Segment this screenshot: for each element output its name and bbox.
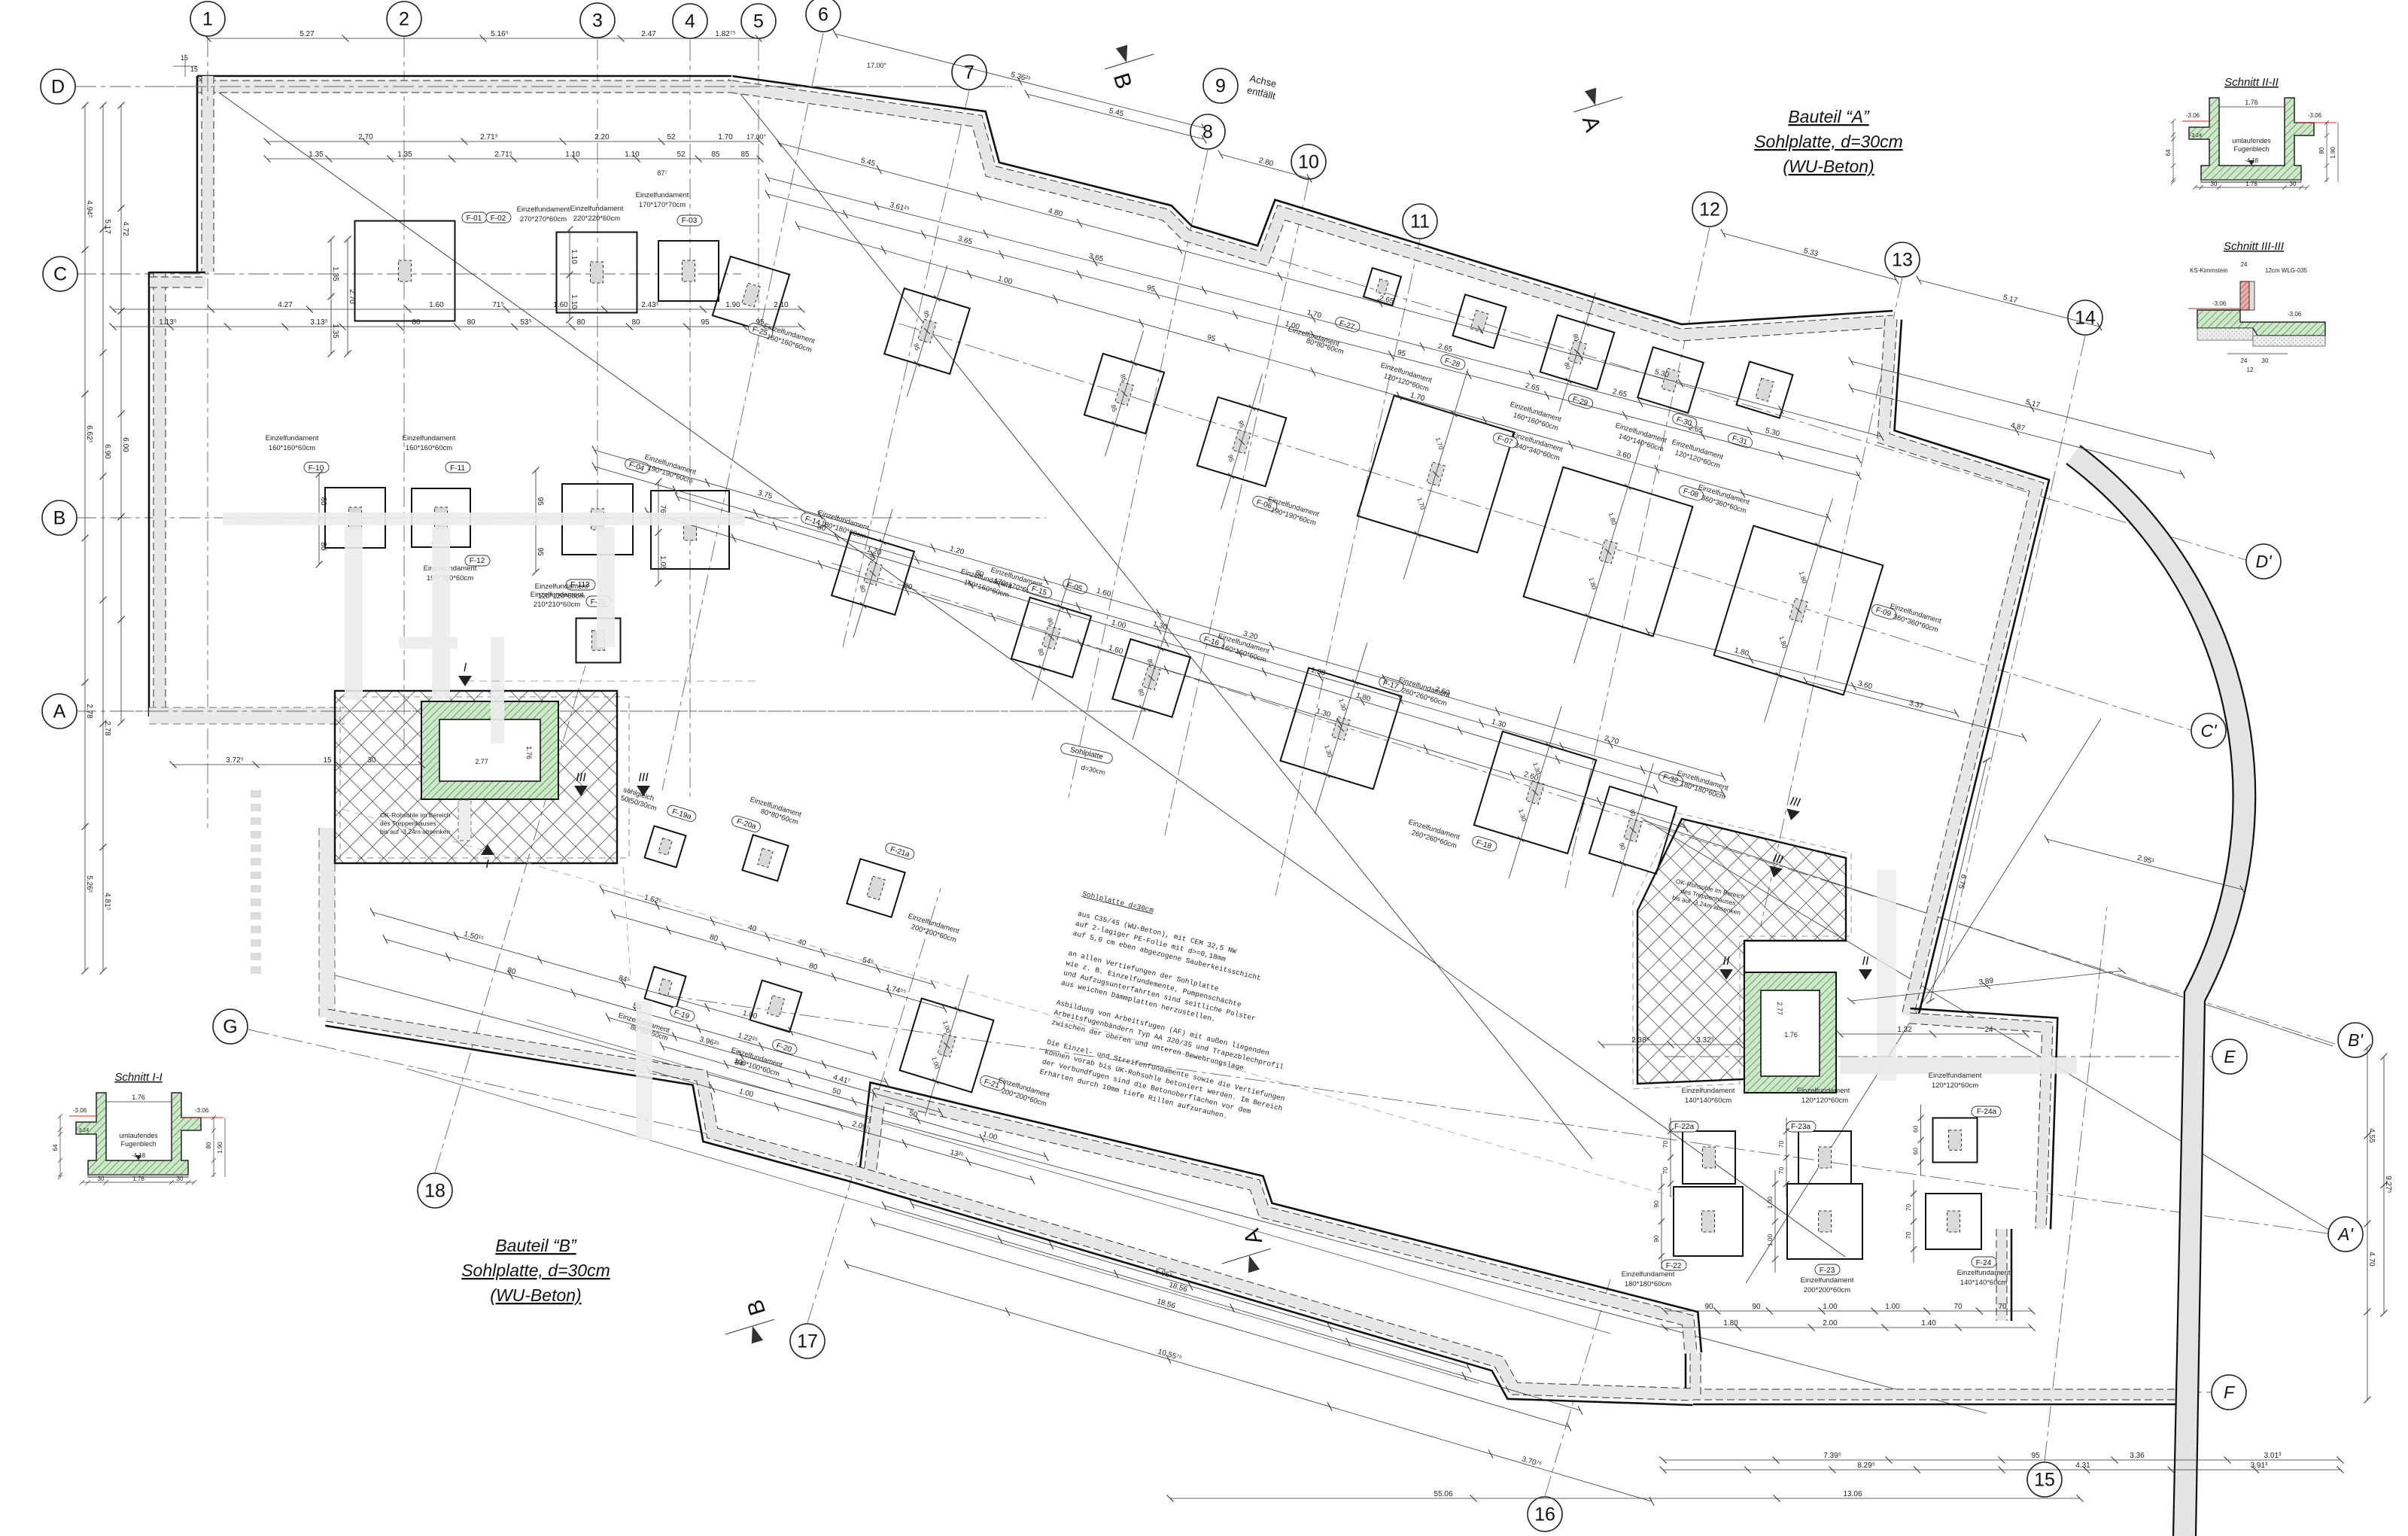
svg-text:Einzelfundament: Einzelfundament bbox=[1801, 1276, 1854, 1285]
svg-text:2.00: 2.00 bbox=[1823, 1319, 1838, 1328]
svg-text:160*160*60cm: 160*160*60cm bbox=[269, 444, 315, 452]
svg-text:F-23a: F-23a bbox=[1791, 1123, 1811, 1131]
svg-text:5.16⁵: 5.16⁵ bbox=[491, 30, 509, 38]
svg-text:III: III bbox=[576, 771, 586, 784]
svg-text:1.35: 1.35 bbox=[331, 324, 339, 339]
svg-text:2.38⁵: 2.38⁵ bbox=[1631, 1036, 1649, 1045]
svg-text:90: 90 bbox=[1704, 1303, 1713, 1311]
svg-text:-3.06: -3.06 bbox=[73, 1107, 87, 1114]
svg-text:1.32: 1.32 bbox=[1897, 1026, 1912, 1034]
svg-text:24: 24 bbox=[1984, 1026, 1993, 1034]
svg-text:12: 12 bbox=[1699, 199, 1720, 221]
svg-text:E: E bbox=[2224, 1047, 2236, 1066]
svg-text:2.70: 2.70 bbox=[358, 133, 373, 141]
svg-text:80: 80 bbox=[319, 497, 327, 506]
svg-text:24: 24 bbox=[2241, 261, 2248, 268]
svg-text:30: 30 bbox=[2211, 181, 2218, 187]
svg-text:1.76: 1.76 bbox=[2245, 99, 2258, 106]
svg-text:-3.06: -3.06 bbox=[2212, 300, 2227, 307]
svg-text:70: 70 bbox=[1662, 1141, 1669, 1148]
svg-text:1.10: 1.10 bbox=[570, 249, 578, 264]
svg-text:4.31: 4.31 bbox=[2075, 1461, 2090, 1470]
svg-text:95: 95 bbox=[2031, 1452, 2040, 1460]
svg-text:A': A' bbox=[2337, 1224, 2354, 1244]
svg-text:1.35: 1.35 bbox=[331, 266, 339, 281]
svg-text:200*200*60cm: 200*200*60cm bbox=[1804, 1286, 1850, 1294]
svg-text:F-01: F-01 bbox=[467, 214, 482, 223]
svg-text:Schnitt III-III: Schnitt III-III bbox=[2224, 240, 2284, 253]
svg-text:30: 30 bbox=[177, 1176, 184, 1182]
svg-text:95: 95 bbox=[536, 497, 544, 506]
svg-text:3.36: 3.36 bbox=[2130, 1452, 2145, 1460]
svg-text:Sohlplatte, d=30cm: Sohlplatte, d=30cm bbox=[461, 1261, 610, 1280]
svg-text:-3.06: -3.06 bbox=[2308, 112, 2322, 119]
svg-text:Einzelfundament: Einzelfundament bbox=[1957, 1269, 2011, 1277]
svg-text:5: 5 bbox=[753, 11, 764, 32]
svg-text:80: 80 bbox=[205, 1142, 212, 1148]
svg-text:F-24: F-24 bbox=[1976, 1259, 1992, 1267]
svg-text:13: 13 bbox=[1892, 250, 1913, 271]
svg-text:120*120*60cm: 120*120*60cm bbox=[538, 592, 585, 601]
svg-text:3.13⁵: 3.13⁵ bbox=[310, 318, 328, 327]
svg-text:70: 70 bbox=[1662, 1167, 1669, 1175]
svg-text:Einzelfundament: Einzelfundament bbox=[403, 434, 456, 443]
svg-text:170*170*70cm: 170*170*70cm bbox=[639, 201, 686, 209]
svg-text:1.80: 1.80 bbox=[1723, 1319, 1738, 1328]
svg-text:140*140*60cm: 140*140*60cm bbox=[1960, 1279, 2007, 1287]
svg-text:71⁵: 71⁵ bbox=[492, 301, 503, 309]
svg-text:80: 80 bbox=[2318, 147, 2325, 154]
svg-text:1: 1 bbox=[202, 9, 213, 30]
svg-text:1.82⁷⁵: 1.82⁷⁵ bbox=[715, 30, 735, 38]
svg-text:1.90: 1.90 bbox=[725, 301, 740, 309]
svg-text:7: 7 bbox=[964, 62, 974, 84]
svg-text:II: II bbox=[1862, 955, 1869, 968]
svg-text:15: 15 bbox=[190, 65, 198, 73]
svg-text:1.90: 1.90 bbox=[2330, 147, 2337, 159]
svg-text:220*220*60cm: 220*220*60cm bbox=[573, 214, 620, 223]
svg-text:15: 15 bbox=[181, 54, 188, 62]
svg-text:-3.06: -3.06 bbox=[195, 1107, 209, 1114]
svg-text:90: 90 bbox=[1752, 1303, 1761, 1311]
svg-text:B': B' bbox=[2348, 1030, 2364, 1050]
svg-text:95: 95 bbox=[536, 547, 544, 556]
svg-text:Schnitt I-I: Schnitt I-I bbox=[114, 1071, 162, 1084]
svg-text:3.89: 3.89 bbox=[1978, 977, 1994, 987]
svg-text:6.00: 6.00 bbox=[121, 437, 129, 452]
svg-text:2.71⁵: 2.71⁵ bbox=[494, 151, 512, 159]
svg-text:II: II bbox=[1723, 955, 1730, 968]
svg-text:F-24a: F-24a bbox=[1977, 1108, 1997, 1116]
svg-text:4: 4 bbox=[685, 11, 695, 32]
svg-text:1.10: 1.10 bbox=[565, 151, 580, 159]
svg-text:1.35: 1.35 bbox=[309, 151, 324, 159]
svg-text:Einzelfundament: Einzelfundament bbox=[636, 191, 689, 199]
svg-text:1.60: 1.60 bbox=[429, 301, 444, 309]
svg-text:F-23: F-23 bbox=[1820, 1267, 1835, 1275]
svg-text:1.13⁵: 1.13⁵ bbox=[159, 318, 177, 327]
svg-text:umlaufendes: umlaufendes bbox=[2232, 137, 2271, 144]
svg-text:D: D bbox=[51, 77, 65, 98]
svg-text:14: 14 bbox=[2075, 308, 2096, 329]
svg-text:80: 80 bbox=[412, 318, 421, 327]
svg-text:2.47: 2.47 bbox=[641, 30, 656, 38]
svg-text:1.76: 1.76 bbox=[132, 1093, 145, 1101]
svg-text:70: 70 bbox=[1777, 1141, 1785, 1148]
svg-text:60: 60 bbox=[1912, 1148, 1920, 1155]
svg-text:7.39⁵: 7.39⁵ bbox=[1823, 1452, 1841, 1460]
svg-text:KS-Kimmstein: KS-Kimmstein bbox=[2190, 267, 2228, 274]
svg-text:9.27⁵: 9.27⁵ bbox=[2384, 1176, 2392, 1194]
svg-text:10: 10 bbox=[1298, 152, 1319, 173]
svg-text:3.01³: 3.01³ bbox=[2264, 1452, 2282, 1460]
svg-text:Bauteil “A”: Bauteil “A” bbox=[1788, 107, 1870, 126]
svg-text:30: 30 bbox=[2290, 181, 2297, 187]
svg-text:95: 95 bbox=[756, 318, 765, 327]
svg-text:Einzelfundament: Einzelfundament bbox=[1682, 1087, 1735, 1095]
svg-text:2.71⁵: 2.71⁵ bbox=[480, 133, 498, 141]
svg-text:2.43⁵: 2.43⁵ bbox=[641, 301, 659, 309]
svg-text:90: 90 bbox=[1652, 1235, 1660, 1242]
svg-text:Einzelfundament: Einzelfundament bbox=[517, 205, 570, 214]
svg-text:1.76: 1.76 bbox=[525, 746, 533, 759]
svg-text:C: C bbox=[53, 264, 67, 285]
svg-text:Schnitt II-II: Schnitt II-II bbox=[2224, 76, 2279, 89]
svg-text:80: 80 bbox=[319, 542, 327, 551]
svg-text:24: 24 bbox=[2241, 357, 2248, 364]
svg-text:13.06: 13.06 bbox=[1843, 1490, 1862, 1498]
svg-text:(WU-Beton): (WU-Beton) bbox=[490, 1285, 581, 1305]
svg-text:III: III bbox=[638, 771, 649, 784]
svg-text:F-03: F-03 bbox=[682, 217, 698, 225]
svg-text:I: I bbox=[464, 662, 467, 674]
svg-text:Einzelfundament: Einzelfundament bbox=[266, 434, 319, 443]
svg-text:180*180*60cm: 180*180*60cm bbox=[1625, 1280, 1671, 1288]
svg-text:1.10: 1.10 bbox=[570, 294, 578, 309]
svg-text:2.77: 2.77 bbox=[475, 758, 488, 765]
svg-text:1.40: 1.40 bbox=[1921, 1319, 1936, 1328]
svg-text:I: I bbox=[485, 856, 489, 869]
svg-text:6.62⁵: 6.62⁵ bbox=[85, 425, 93, 443]
svg-text:5.27: 5.27 bbox=[299, 30, 315, 38]
svg-text:B: B bbox=[53, 508, 66, 529]
svg-text:160*160*60cm: 160*160*60cm bbox=[406, 444, 452, 452]
svg-text:1.76: 1.76 bbox=[1784, 1031, 1798, 1039]
svg-text:4.70: 4.70 bbox=[2367, 1252, 2376, 1267]
svg-text:80: 80 bbox=[631, 318, 640, 327]
svg-text:3: 3 bbox=[592, 11, 603, 32]
svg-text:1.60: 1.60 bbox=[553, 301, 568, 309]
svg-text:1.00: 1.00 bbox=[1823, 1303, 1838, 1311]
svg-text:52: 52 bbox=[667, 133, 676, 141]
svg-text:3.91³: 3.91³ bbox=[2251, 1461, 2268, 1470]
svg-text:2.77: 2.77 bbox=[1776, 1002, 1783, 1015]
svg-text:70: 70 bbox=[1905, 1204, 1912, 1212]
svg-text:Fugenblech: Fugenblech bbox=[120, 1140, 156, 1148]
svg-text:4.27: 4.27 bbox=[278, 301, 293, 309]
svg-text:15: 15 bbox=[323, 756, 332, 765]
svg-text:2.78: 2.78 bbox=[85, 704, 93, 719]
svg-text:F: F bbox=[2224, 1382, 2236, 1402]
svg-text:80: 80 bbox=[467, 318, 476, 327]
svg-text:18: 18 bbox=[424, 1181, 445, 1202]
svg-text:Fugenblech: Fugenblech bbox=[2233, 145, 2269, 153]
svg-text:270*270*60cm: 270*270*60cm bbox=[520, 215, 567, 224]
svg-text:Einzelfundament: Einzelfundament bbox=[1797, 1087, 1850, 1095]
svg-text:9: 9 bbox=[1215, 76, 1226, 97]
svg-text:F-02: F-02 bbox=[491, 214, 506, 223]
svg-text:1.05: 1.05 bbox=[658, 555, 667, 570]
svg-text:64: 64 bbox=[52, 1144, 59, 1151]
svg-text:2.70: 2.70 bbox=[348, 289, 356, 304]
svg-text:Einzelfundament: Einzelfundament bbox=[424, 564, 477, 573]
svg-text:30: 30 bbox=[98, 1176, 105, 1182]
svg-text:-3.06: -3.06 bbox=[2186, 112, 2200, 119]
svg-text:umlaufendes: umlaufendes bbox=[119, 1132, 158, 1139]
svg-text:11: 11 bbox=[1410, 211, 1430, 233]
svg-text:85: 85 bbox=[740, 151, 749, 159]
svg-text:5.26⁵: 5.26⁵ bbox=[85, 875, 93, 893]
svg-text:90: 90 bbox=[1652, 1200, 1660, 1208]
svg-text:F-22: F-22 bbox=[1666, 1262, 1682, 1270]
svg-text:15: 15 bbox=[2034, 1470, 2055, 1491]
svg-text:17: 17 bbox=[797, 1331, 818, 1352]
svg-text:2.78: 2.78 bbox=[103, 721, 111, 736]
svg-text:Einzelfundament: Einzelfundament bbox=[1622, 1270, 1675, 1279]
svg-text:1.76: 1.76 bbox=[132, 1176, 144, 1182]
svg-text:1.00: 1.00 bbox=[1766, 1233, 1774, 1246]
svg-text:53⁵: 53⁵ bbox=[520, 318, 531, 327]
svg-text:55.06: 55.06 bbox=[1434, 1490, 1452, 1498]
svg-text:17.00°: 17.00° bbox=[867, 62, 887, 69]
svg-text:-3.06: -3.06 bbox=[2288, 311, 2302, 318]
svg-text:D': D' bbox=[2255, 552, 2273, 571]
svg-text:120*120*60cm: 120*120*60cm bbox=[1801, 1096, 1848, 1105]
svg-text:120*120*60cm: 120*120*60cm bbox=[1932, 1081, 1978, 1090]
svg-text:1.00: 1.00 bbox=[1766, 1196, 1774, 1209]
svg-text:8.29⁵: 8.29⁵ bbox=[1857, 1461, 1875, 1470]
svg-text:16: 16 bbox=[1534, 1504, 1555, 1525]
svg-text:F-11: F-11 bbox=[450, 464, 465, 473]
svg-text:6.90: 6.90 bbox=[103, 444, 111, 459]
svg-text:210*210*60cm: 210*210*60cm bbox=[534, 601, 580, 609]
svg-text:12cm WLG-035: 12cm WLG-035 bbox=[2265, 267, 2308, 274]
svg-text:A: A bbox=[53, 701, 66, 722]
svg-text:Sohlplatte, d=30cm: Sohlplatte, d=30cm bbox=[1754, 132, 1903, 151]
svg-text:30: 30 bbox=[367, 756, 376, 765]
svg-text:2: 2 bbox=[399, 9, 409, 30]
svg-text:-3.24: -3.24 bbox=[77, 1128, 89, 1133]
svg-text:6: 6 bbox=[818, 5, 829, 26]
svg-text:80: 80 bbox=[576, 318, 585, 327]
svg-text:4.55: 4.55 bbox=[2367, 1128, 2376, 1143]
svg-text:70: 70 bbox=[1905, 1232, 1912, 1239]
svg-text:85: 85 bbox=[711, 151, 720, 159]
svg-text:70: 70 bbox=[1953, 1303, 1963, 1311]
svg-text:3.32⁵: 3.32⁵ bbox=[1696, 1036, 1714, 1045]
svg-text:4.94⁵: 4.94⁵ bbox=[85, 200, 93, 218]
svg-text:5.17: 5.17 bbox=[103, 219, 111, 234]
svg-text:95: 95 bbox=[701, 318, 710, 327]
svg-text:70: 70 bbox=[1998, 1303, 2007, 1311]
svg-text:C': C' bbox=[2200, 721, 2218, 741]
svg-text:3.72⁵: 3.72⁵ bbox=[226, 756, 244, 765]
svg-text:Einzelfundament: Einzelfundament bbox=[570, 205, 624, 213]
svg-text:1.76: 1.76 bbox=[2245, 181, 2257, 187]
svg-text:87⁷: 87⁷ bbox=[657, 169, 667, 177]
svg-text:52: 52 bbox=[676, 151, 686, 159]
svg-text:Einzelfundament: Einzelfundament bbox=[535, 582, 588, 591]
svg-text:-3.24: -3.24 bbox=[2190, 133, 2202, 138]
svg-text:G: G bbox=[223, 1017, 237, 1038]
svg-text:Einzelfundament: Einzelfundament bbox=[1929, 1072, 1982, 1080]
svg-text:1.00: 1.00 bbox=[1885, 1303, 1900, 1311]
svg-text:60: 60 bbox=[1912, 1125, 1920, 1133]
svg-text:12: 12 bbox=[2247, 367, 2254, 373]
svg-text:1.10: 1.10 bbox=[625, 151, 640, 159]
svg-text:(WU-Beton): (WU-Beton) bbox=[1783, 157, 1874, 176]
svg-text:17.00°: 17.00° bbox=[746, 133, 767, 141]
svg-text:70: 70 bbox=[1777, 1167, 1785, 1175]
svg-text:2.20: 2.20 bbox=[594, 133, 610, 141]
svg-text:1.35: 1.35 bbox=[397, 151, 412, 159]
svg-text:F-22a: F-22a bbox=[1674, 1123, 1695, 1131]
svg-text:140*140*60cm: 140*140*60cm bbox=[1685, 1096, 1732, 1105]
svg-text:64: 64 bbox=[2165, 149, 2172, 156]
svg-text:1.90: 1.90 bbox=[217, 1142, 223, 1154]
svg-text:4.72: 4.72 bbox=[121, 221, 129, 236]
svg-text:30: 30 bbox=[2262, 357, 2269, 364]
svg-text:Bauteil “B”: Bauteil “B” bbox=[495, 1236, 577, 1255]
svg-text:2.10: 2.10 bbox=[774, 301, 789, 309]
svg-text:1.70: 1.70 bbox=[718, 133, 733, 141]
svg-text:4.81⁵: 4.81⁵ bbox=[103, 893, 111, 911]
